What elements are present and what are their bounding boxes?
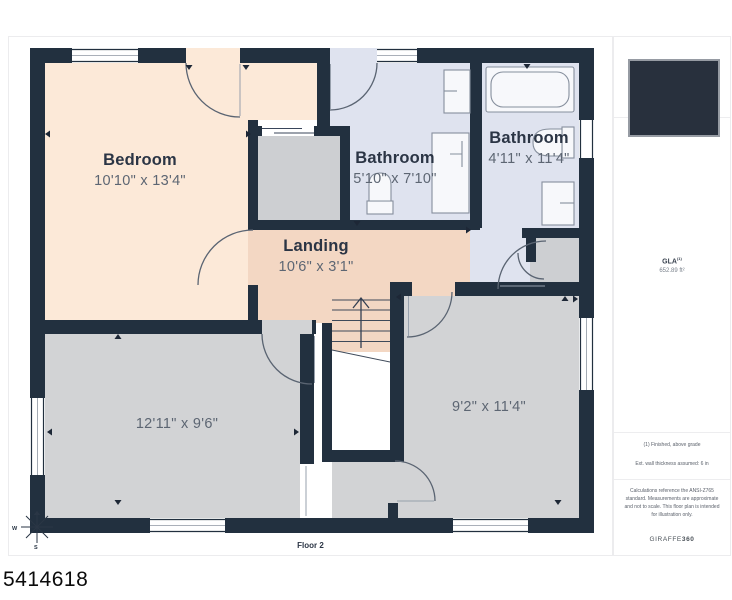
- floor-plan-drawing: W S: [0, 0, 732, 600]
- stairs: [332, 298, 390, 450]
- floor-name-label: Floor 2: [8, 541, 613, 550]
- photo-id: 5414618: [3, 568, 88, 592]
- floorplan-viewer: GLA(1) 652.89 ft² (1) Finished, above gr…: [0, 0, 732, 600]
- compass-west-label: W: [12, 526, 18, 532]
